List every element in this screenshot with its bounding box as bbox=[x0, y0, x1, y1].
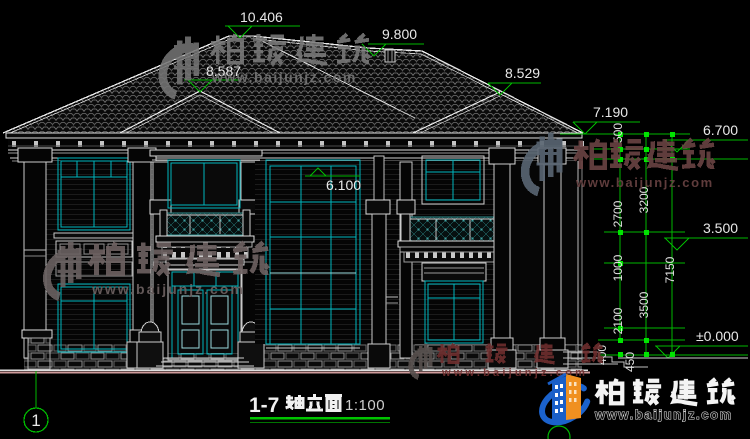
svg-text:8.529: 8.529 bbox=[505, 65, 540, 81]
svg-text:500: 500 bbox=[611, 123, 625, 143]
svg-text:1000: 1000 bbox=[611, 254, 625, 281]
svg-text:9.800: 9.800 bbox=[382, 26, 417, 42]
svg-text:1: 1 bbox=[31, 411, 40, 430]
svg-text:2100: 2100 bbox=[611, 307, 625, 334]
svg-text:7150: 7150 bbox=[663, 256, 677, 283]
svg-text:www.baijunjz.com: www.baijunjz.com bbox=[575, 175, 714, 190]
svg-text:www.baijunjz.com: www.baijunjz.com bbox=[91, 281, 245, 297]
svg-text:±0.000: ±0.000 bbox=[696, 328, 739, 344]
svg-text:www.baijunjz.com: www.baijunjz.com bbox=[211, 69, 357, 85]
svg-text:1-7: 1-7 bbox=[249, 394, 279, 417]
svg-text:www.baijunjz.com: www.baijunjz.com bbox=[594, 407, 733, 422]
svg-text:10.406: 10.406 bbox=[240, 9, 283, 25]
svg-text:2700: 2700 bbox=[611, 200, 625, 227]
svg-text:6.100: 6.100 bbox=[326, 177, 361, 193]
svg-text:3.500: 3.500 bbox=[703, 220, 738, 236]
svg-text:6.700: 6.700 bbox=[703, 122, 738, 138]
svg-text:450: 450 bbox=[623, 352, 637, 372]
svg-text:7.190: 7.190 bbox=[593, 104, 628, 120]
svg-text:1:100: 1:100 bbox=[345, 397, 385, 414]
svg-text:3200: 3200 bbox=[637, 186, 651, 213]
svg-text:3500: 3500 bbox=[637, 291, 651, 318]
